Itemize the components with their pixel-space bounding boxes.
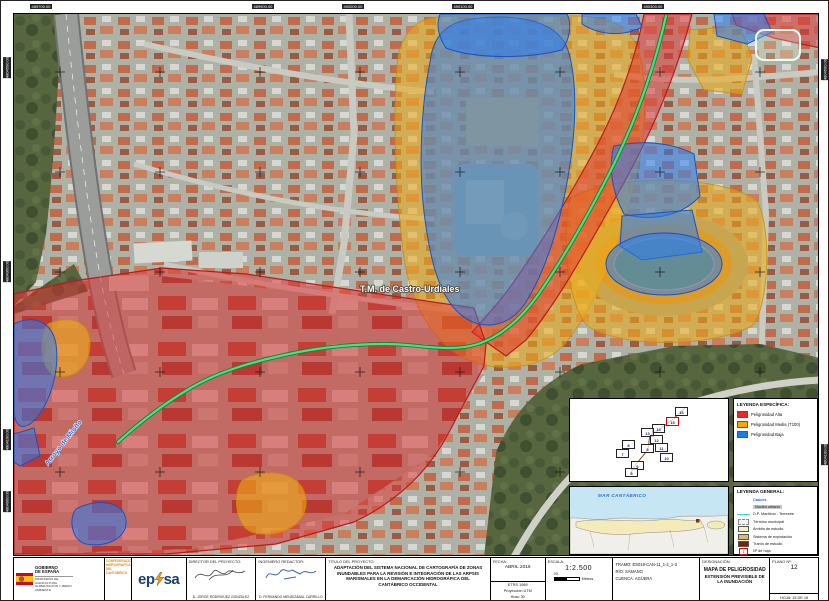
legend-item-ambito: Ámbito de estudio <box>737 526 814 533</box>
map-viewport: T.M. de Castro-Urdiales Arroyo de Mioño … <box>13 13 819 556</box>
legend-item-high: Peligrosidad Alta <box>737 409 814 419</box>
easting-label: 490000.00 <box>342 4 364 9</box>
eptisa-bolt-icon <box>155 572 164 586</box>
sheet-index-cell: 16 <box>675 407 688 416</box>
legend-general-title: LEYENDA GENERAL: <box>737 489 814 494</box>
legend-specific-title: LEYENDA ESPECÍFICA: <box>737 402 814 407</box>
easting-label: 490300.00 <box>642 4 664 9</box>
engineer-signature <box>256 564 326 595</box>
confederation-name: CONFEDERACIÓN HIDROGRÁFICA DEL CANTÁBRIC… <box>106 560 130 575</box>
hoja-counter: HOJA: 15 DE 16 <box>770 596 818 600</box>
scale-value: 1:2.500 <box>546 565 612 572</box>
legend-item-nucleo-urbano: Núcleo urbano <box>737 503 814 510</box>
location-inset: MAR CANTÁBRICO <box>569 486 729 555</box>
reach-info-cell: TRAMO: ES018-CAN-11_1-2_1-3 RÍO: SÁMANO … <box>613 558 701 600</box>
northing-label: 4804500.00 <box>821 59 829 80</box>
scale-cell: ESCALA: 1:2.500 20 Metros <box>546 558 613 600</box>
cuenca-value: CUENCA: AGÜERA <box>616 576 697 581</box>
sheet-index-cell: 11 <box>655 443 668 452</box>
legend-item-sistema: Sistema de explotación <box>737 533 814 540</box>
high-hazard-swatch <box>737 411 748 418</box>
scale-bar <box>554 577 580 581</box>
northing-label: 4804100.00 <box>821 444 829 465</box>
government-logo-cell: GOBIERNO DE ESPAÑA MINISTERIO DE AGRICUL… <box>14 558 105 600</box>
medium-hazard-swatch <box>737 421 748 428</box>
study-reach-outline <box>756 30 800 60</box>
director-signature <box>187 564 257 595</box>
sheet-index-cell: 8 <box>622 440 635 449</box>
gobierno-line2: DE ESPAÑA <box>35 570 73 575</box>
sheet-index-cell: 10 <box>660 453 673 462</box>
sheet-index-cell: 7 <box>616 449 629 458</box>
easting-label: 489700.00 <box>30 4 52 9</box>
spain-flag-icon <box>16 573 33 585</box>
sheet-index-cell: 9 <box>641 444 654 453</box>
easting-label: 489900.00 <box>252 4 274 9</box>
legend-specific: LEYENDA ESPECÍFICA: Peligrosidad Alta Pe… <box>733 398 818 482</box>
legend-item-medium: Peligrosidad Media (T100) <box>737 419 814 429</box>
sheet-index-river-trace <box>570 399 728 481</box>
company-logo-cell: ep sa <box>132 558 187 600</box>
confederation-cell: CONFEDERACIÓN HIDROGRÁFICA DEL CANTÁBRIC… <box>105 558 132 600</box>
title-block: GOBIERNO DE ESPAÑA MINISTERIO DE AGRICUL… <box>13 557 819 601</box>
datum-line3: Huso 30 <box>491 595 545 600</box>
designation-line2: EXTENSIÓN PREVISIBLE DE LA INUNDACIÓN <box>700 574 769 584</box>
ministry-name: MINISTERIO DE AGRICULTURA, ALIMENTACIÓN … <box>35 576 73 592</box>
sea-label: MAR CANTÁBRICO <box>598 493 646 498</box>
legend-item-low: Peligrosidad Baja <box>737 429 814 439</box>
northing-label: 4804300.00 <box>3 261 11 282</box>
sheet-index-cell: 5 <box>625 468 638 477</box>
legend-general: LEYENDA GENERAL: Cauces Núcleo urbano D.… <box>733 486 818 555</box>
date-value: ABRIL 2016 <box>491 565 545 570</box>
region-map <box>570 487 728 554</box>
rio-value: RÍO: SÁMANO <box>616 569 697 574</box>
low-hazard-swatch <box>737 431 748 438</box>
designation-line1: MAPA DE PELIGROSIDAD <box>700 567 769 573</box>
legend-item-num-hoja: 1 Nº de hoja <box>737 548 814 555</box>
sheet-index-inset: 1615141312111098765 <box>569 398 729 482</box>
date-label: FECHA: <box>491 558 545 564</box>
sheet-number-symbol: 1 <box>737 548 750 555</box>
municipal-boundary-symbol <box>737 519 750 525</box>
project-title-text: ADAPTACIÓN DEL SISTEMA NACIONAL DE CARTO… <box>326 564 490 588</box>
engineer-name: D. FERNANDO MENDIZÁBAL CARRILLO <box>256 595 325 601</box>
datum-line2: Proyección UTM <box>491 589 545 594</box>
eptisa-logo: ep sa <box>138 571 179 588</box>
plano-number: 12 <box>770 564 818 571</box>
sheet-number-cell: PLANO Nº: 12 HOJA: 15 DE 16 <box>770 558 818 600</box>
coastline-symbol <box>737 514 750 515</box>
study-scope-swatch <box>737 526 750 532</box>
sheet-index-current: 15 <box>666 417 679 426</box>
municipality-label: T.M. de Castro-Urdiales <box>360 284 460 294</box>
scale-bar-unit: Metros <box>582 577 594 581</box>
legend-item-dp-maritimo: D.P. Marítimo - Terrestre <box>737 511 814 518</box>
northing-label: 4804100.00 <box>3 429 11 450</box>
easting-label: 490100.00 <box>452 4 474 9</box>
project-title-cell: TÍTULO DEL PROYECTO: ADAPTACIÓN DEL SIST… <box>326 558 491 600</box>
legend-item-cauces: Cauces <box>737 496 814 503</box>
scale-label: ESCALA: <box>546 558 612 564</box>
director-cell: DIRECTOR DEL PROYECTO: D. JORGE RODRÍGUE… <box>187 558 257 600</box>
northing-label: 4804500.00 <box>3 57 11 78</box>
study-reach-swatch <box>737 541 750 547</box>
exploitation-system-swatch <box>737 534 750 540</box>
legend-item-termino-municipal: Término municipal <box>737 518 814 525</box>
designation-label: DESIGNACIÓN: <box>700 558 769 564</box>
designation-cell: DESIGNACIÓN: MAPA DE PELIGROSIDAD EXTENS… <box>700 558 770 600</box>
map-sheet-page: T.M. de Castro-Urdiales Arroyo de Mioño … <box>0 0 829 601</box>
engineer-cell: INGENIERO REDACTOR: D. FERNANDO MENDIZÁB… <box>256 558 326 600</box>
northing-label: 4804000.00 <box>3 491 11 512</box>
legend-item-tramo: Tramo de estudio <box>737 540 814 547</box>
date-datum-cell: FECHA: ABRIL 2016 ETRS 1989 Proyección U… <box>491 558 546 600</box>
tramo-value: TRAMO: ES018-CAN-11_1-2_1-3 <box>616 562 697 567</box>
datum-line1: ETRS 1989 <box>491 583 545 588</box>
director-name: D. JORGE RODRÍGUEZ GONZÁLEZ <box>187 595 256 601</box>
